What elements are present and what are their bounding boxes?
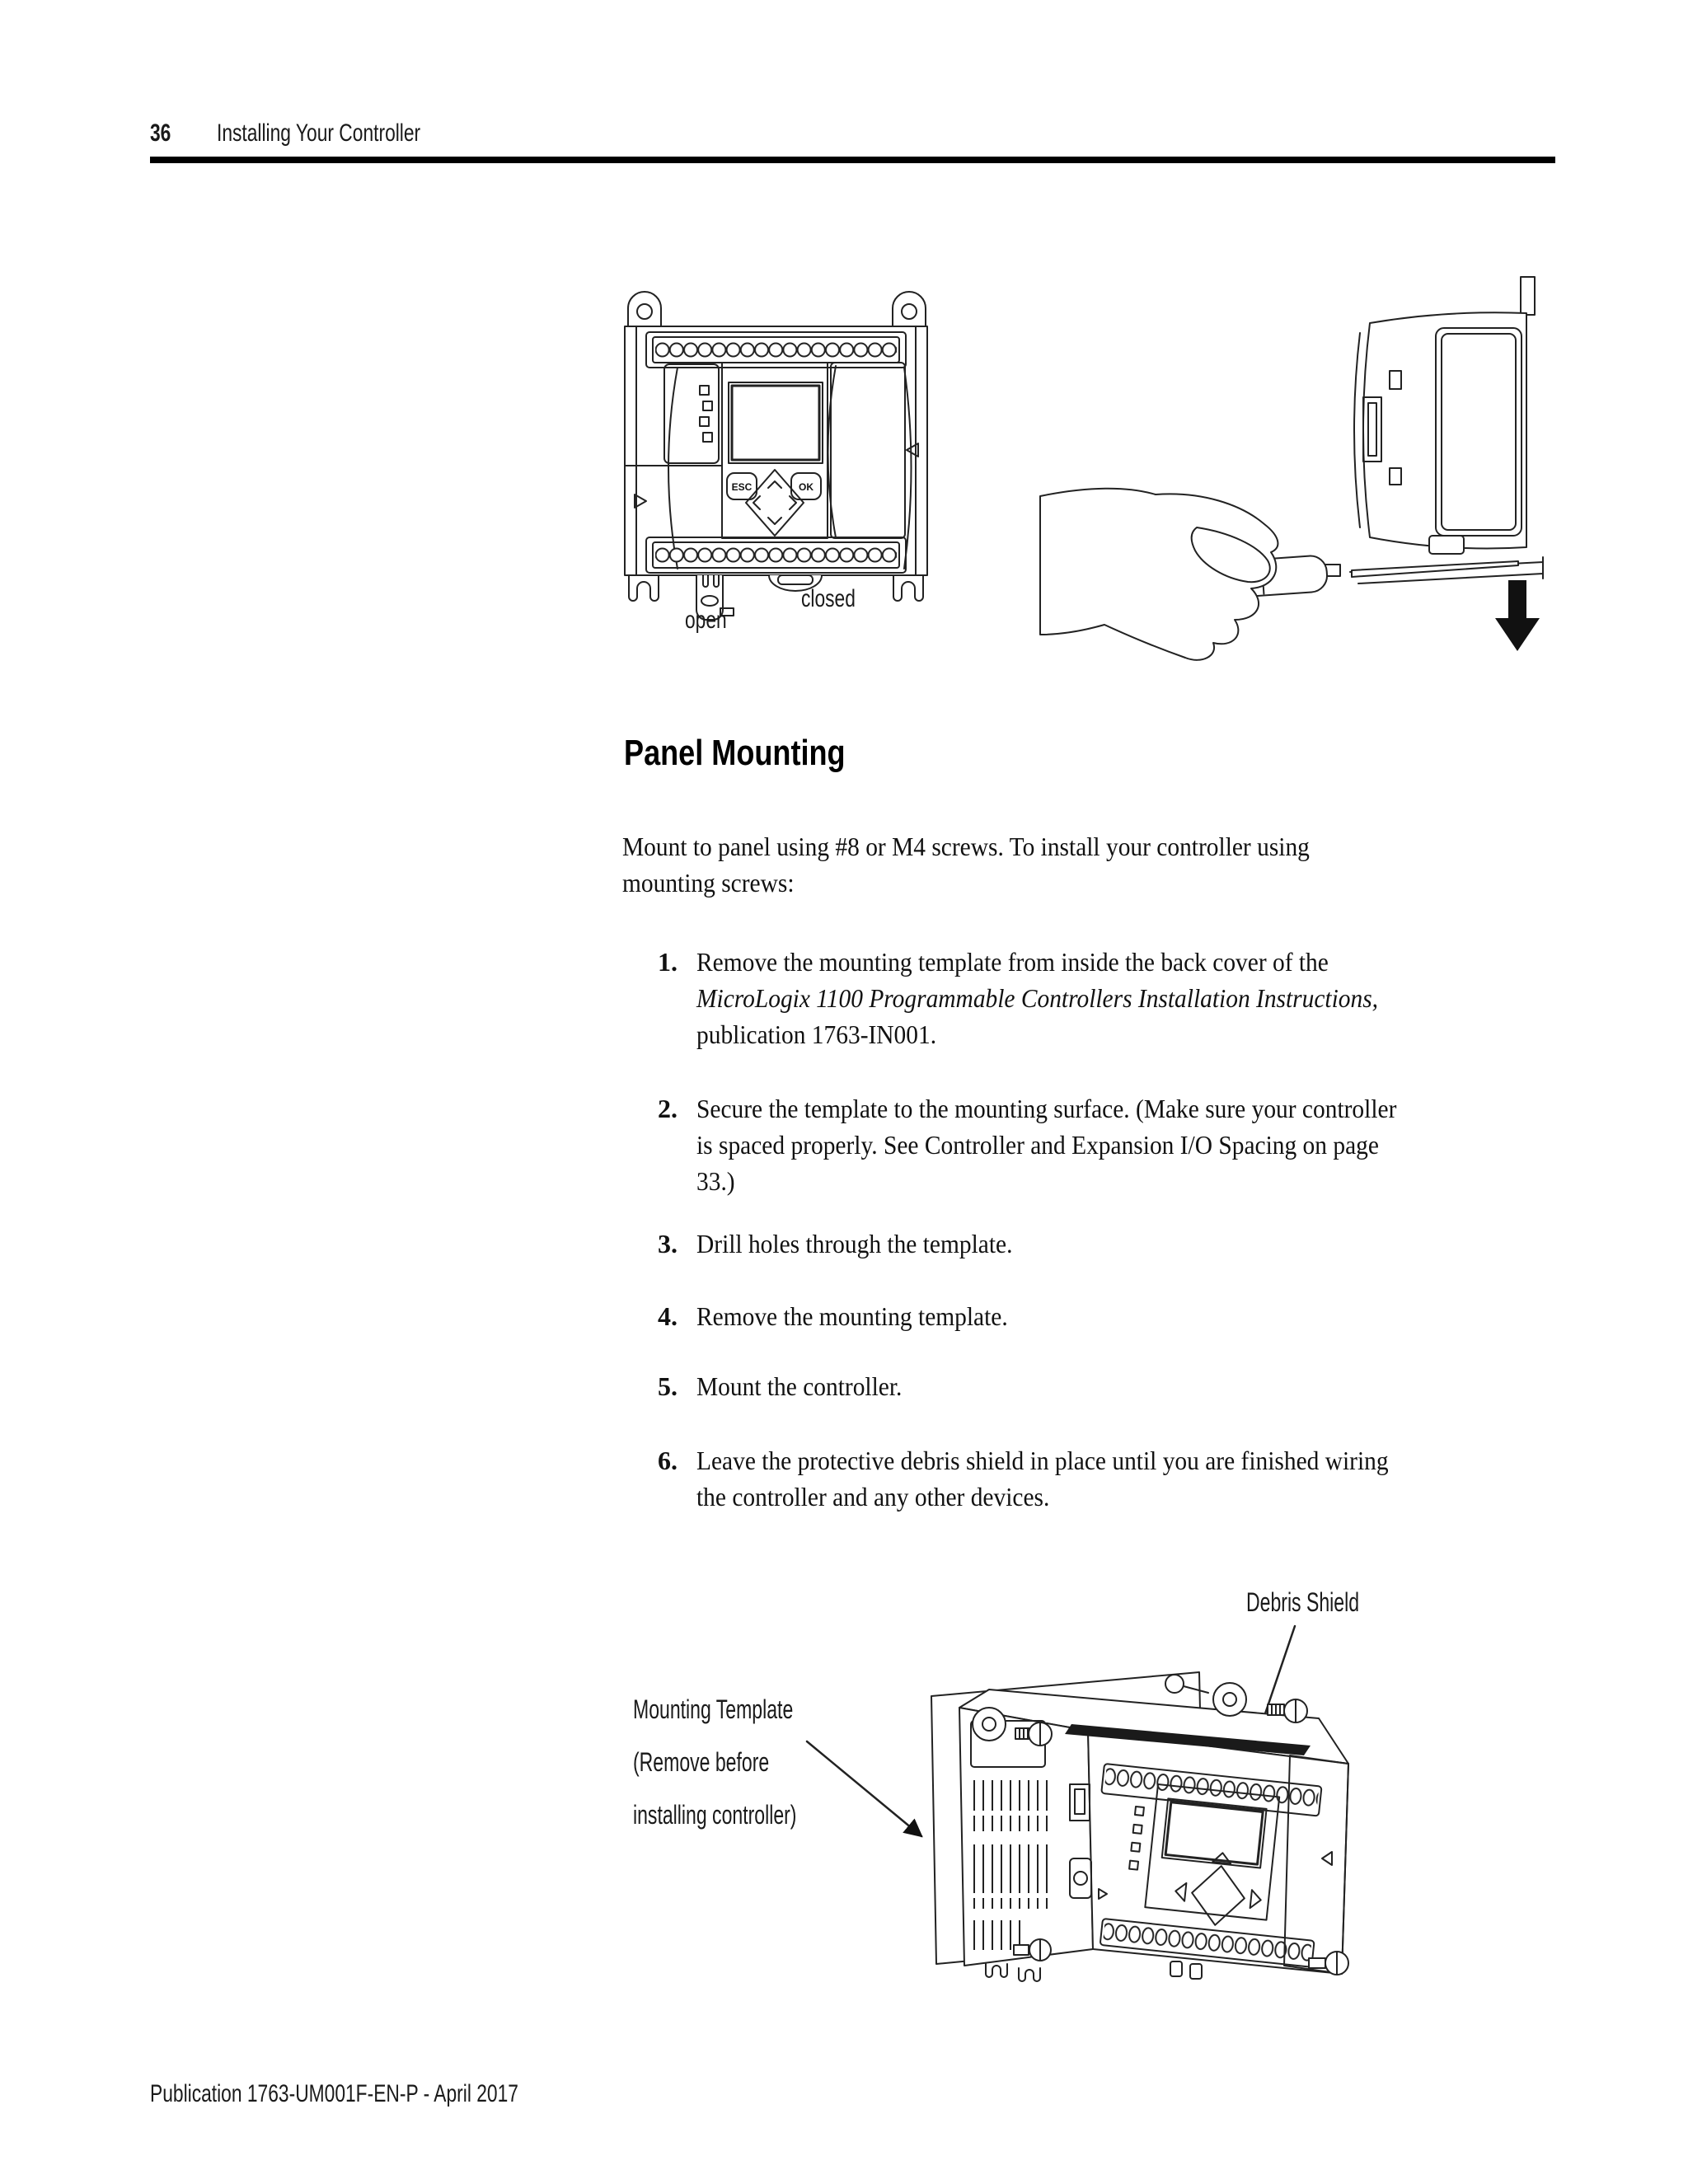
latch-closed-label: closed bbox=[801, 587, 856, 612]
debris-shield-label: Debris Shield bbox=[1246, 1589, 1359, 1615]
terminal-strip-top bbox=[655, 338, 897, 362]
step-number: 4. bbox=[658, 1303, 678, 1329]
step-line: the controller and any other devices. bbox=[696, 1483, 1049, 1510]
foot-tab bbox=[986, 1964, 1007, 1977]
step-line: Remove the mounting template. bbox=[696, 1303, 1008, 1329]
latch-open-label: open bbox=[685, 608, 727, 633]
intro-line: mounting screws: bbox=[622, 869, 795, 896]
step-line: Remove the mounting template from inside… bbox=[696, 949, 1329, 975]
figure-din-latch-front: ESC OK bbox=[614, 280, 940, 643]
step-number: 5. bbox=[658, 1373, 678, 1399]
down-arrow-icon bbox=[1495, 580, 1540, 651]
step-line: Leave the protective debris shield in pl… bbox=[696, 1447, 1389, 1474]
controller-side-body bbox=[1363, 312, 1526, 548]
latch-tab bbox=[1170, 1961, 1182, 1976]
mount-ear-right bbox=[893, 292, 926, 327]
mounting-template-label: Mounting Template bbox=[633, 1696, 793, 1722]
step-line-italic-title: MicroLogix 1100 Programmable Controllers… bbox=[696, 985, 1378, 1011]
din-rail-top bbox=[1521, 277, 1535, 315]
mount-ear-right-hole bbox=[902, 304, 917, 319]
document-page: 36 Installing Your Controller bbox=[0, 0, 1688, 2184]
latch-tab bbox=[1190, 1964, 1202, 1979]
header-rule bbox=[150, 157, 1555, 163]
foot-tab bbox=[1019, 1968, 1040, 1981]
screw-shank bbox=[1014, 1945, 1029, 1955]
figure-din-rail-removal bbox=[1039, 264, 1550, 669]
intro-line: Mount to panel using #8 or M4 screws. To… bbox=[622, 833, 1310, 860]
step-line: publication 1763-IN001. bbox=[696, 1021, 936, 1047]
vent-slots bbox=[973, 1844, 1055, 1909]
section-title: Panel Mounting bbox=[624, 735, 846, 771]
mounting-template-leader bbox=[807, 1741, 921, 1836]
mounting-template-label: (Remove before bbox=[633, 1749, 769, 1775]
screw-shank bbox=[1309, 1958, 1325, 1968]
esc-button-label: ESC bbox=[732, 481, 753, 493]
step-line: Drill holes through the template. bbox=[696, 1230, 1012, 1257]
mount-ear-left bbox=[628, 292, 661, 327]
step-number: 6. bbox=[658, 1447, 678, 1474]
page-number: 36 bbox=[150, 121, 171, 146]
step-number: 1. bbox=[658, 949, 678, 975]
ok-button-label: OK bbox=[799, 481, 814, 493]
vent-slots bbox=[973, 1780, 1055, 1831]
template-hole bbox=[1165, 1675, 1184, 1693]
footer-publication: Publication 1763-UM001F-EN-P - April 201… bbox=[150, 2082, 518, 2107]
terminal-strip-bottom bbox=[655, 543, 897, 567]
header-title: Installing Your Controller bbox=[217, 121, 420, 146]
mount-ear-left-hole bbox=[637, 304, 652, 319]
mounting-template-label: installing controller) bbox=[633, 1802, 796, 1828]
step-line: Mount the controller. bbox=[696, 1373, 902, 1399]
foot-left bbox=[629, 575, 659, 601]
step-number: 2. bbox=[658, 1095, 678, 1122]
step-number: 3. bbox=[658, 1230, 678, 1257]
step-line: 33.) bbox=[696, 1168, 735, 1194]
din-latch bbox=[1429, 536, 1464, 554]
screwdriver-shaft bbox=[1352, 561, 1518, 577]
foot-right bbox=[893, 575, 923, 601]
step-line: Secure the template to the mounting surf… bbox=[696, 1095, 1396, 1122]
step-line: is spaced properly. See Controller and E… bbox=[696, 1132, 1379, 1158]
mount-ear-top-right bbox=[1213, 1683, 1246, 1716]
mount-ear-top-left bbox=[973, 1708, 1006, 1741]
